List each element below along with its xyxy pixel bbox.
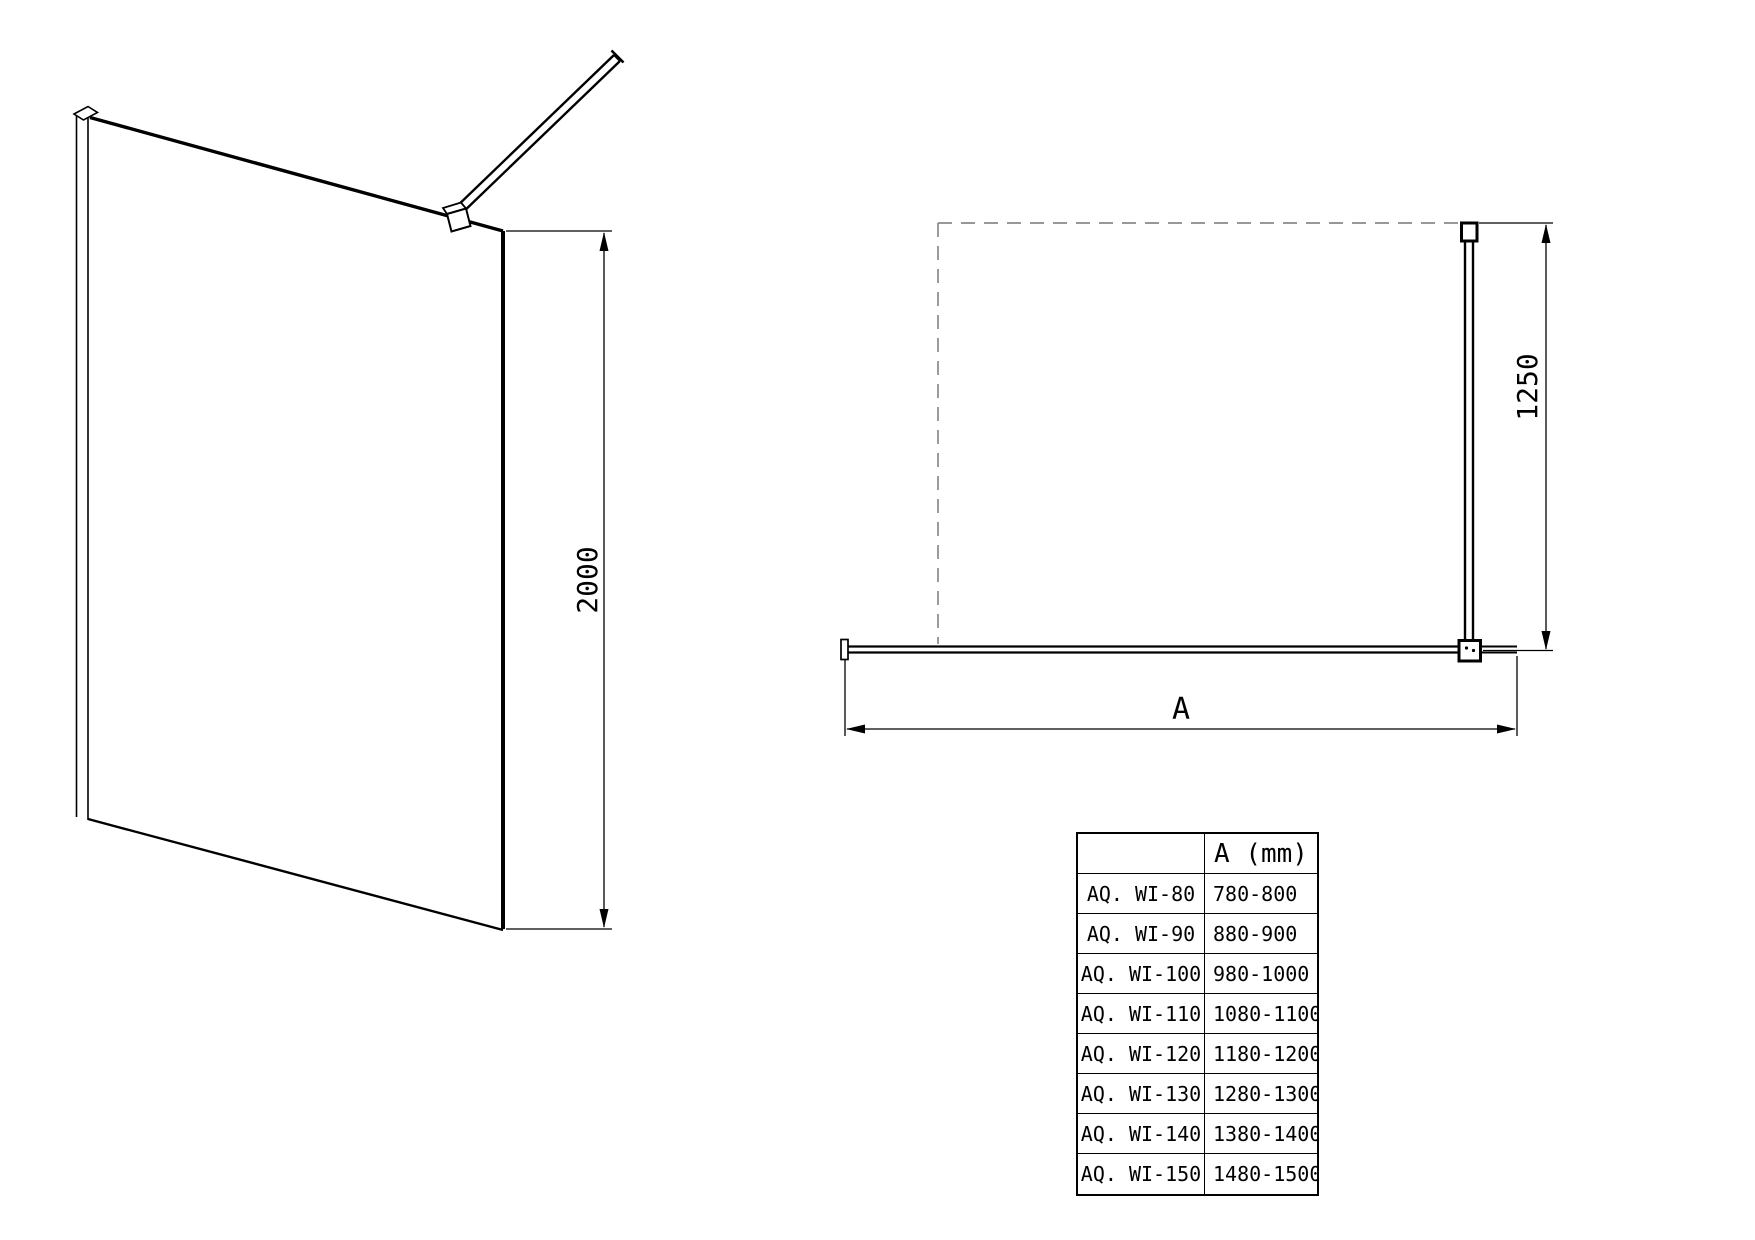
table-row-model: AQ. WI-100 <box>1078 954 1205 994</box>
glass-plan-wall-end-cap <box>841 640 848 660</box>
glass-clamp <box>443 203 471 232</box>
support-arm <box>452 51 624 218</box>
table-row-model: AQ. WI-110 <box>1078 994 1205 1034</box>
dim-2000-label: 2000 <box>571 546 604 613</box>
dim-2000-arrow-top <box>600 232 609 251</box>
table-row-model: AQ. WI-120 <box>1078 1034 1205 1074</box>
glass-bottom-edge <box>88 819 503 930</box>
table-row-range: 780-800 <box>1205 874 1317 914</box>
glass-top-edge <box>90 118 503 232</box>
wall-dashed-lines <box>938 223 1459 644</box>
table-row-range: 1180-1200 <box>1205 1034 1317 1074</box>
spec-table-header-model <box>1078 834 1205 874</box>
dim-1250-arrow-top <box>1542 224 1551 243</box>
table-row-model: AQ. WI-140 <box>1078 1114 1205 1154</box>
spec-table: A (mm) AQ. WI-80 780-800 AQ. WI-90 880-9… <box>1076 832 1319 1196</box>
table-row-model: AQ. WI-80 <box>1078 874 1205 914</box>
spec-table-header-a-mm: A (mm) <box>1205 834 1317 874</box>
dim-a-arrow-right <box>1497 725 1516 734</box>
table-row-model: AQ. WI-150 <box>1078 1154 1205 1194</box>
table-row-range: 1480-1500 <box>1205 1154 1317 1194</box>
table-row-range: 1080-1100 <box>1205 994 1317 1034</box>
wall-profile <box>74 107 98 821</box>
dim-1250: 1250 <box>1479 223 1553 651</box>
table-row-range: 880-900 <box>1205 914 1317 954</box>
support-bar-plan <box>1459 223 1481 661</box>
support-bar-wall-bracket <box>1462 223 1478 241</box>
front-view: 2000 <box>74 51 624 931</box>
dim-1250-arrow-bottom <box>1542 631 1551 650</box>
table-row-range: 1280-1300 <box>1205 1074 1317 1114</box>
support-bar-glass-bracket <box>1459 641 1481 662</box>
dim-2000: 2000 <box>506 231 612 929</box>
table-row-range: 1380-1400 <box>1205 1114 1317 1154</box>
table-row-range: 980-1000 <box>1205 954 1317 994</box>
dim-2000-arrow-bottom <box>600 909 609 928</box>
table-row-model: AQ. WI-90 <box>1078 914 1205 954</box>
dim-a-label: A <box>1172 692 1190 727</box>
table-row-model: AQ. WI-130 <box>1078 1074 1205 1114</box>
glass-panel <box>88 118 503 931</box>
dim-a-arrow-left <box>846 725 865 734</box>
glass-plan <box>841 640 1517 660</box>
dim-1250-label: 1250 <box>1511 353 1544 420</box>
dim-a: A <box>845 656 1517 736</box>
technical-drawing: 2000 <box>0 0 1755 1240</box>
top-view: 1250 A <box>841 223 1553 736</box>
